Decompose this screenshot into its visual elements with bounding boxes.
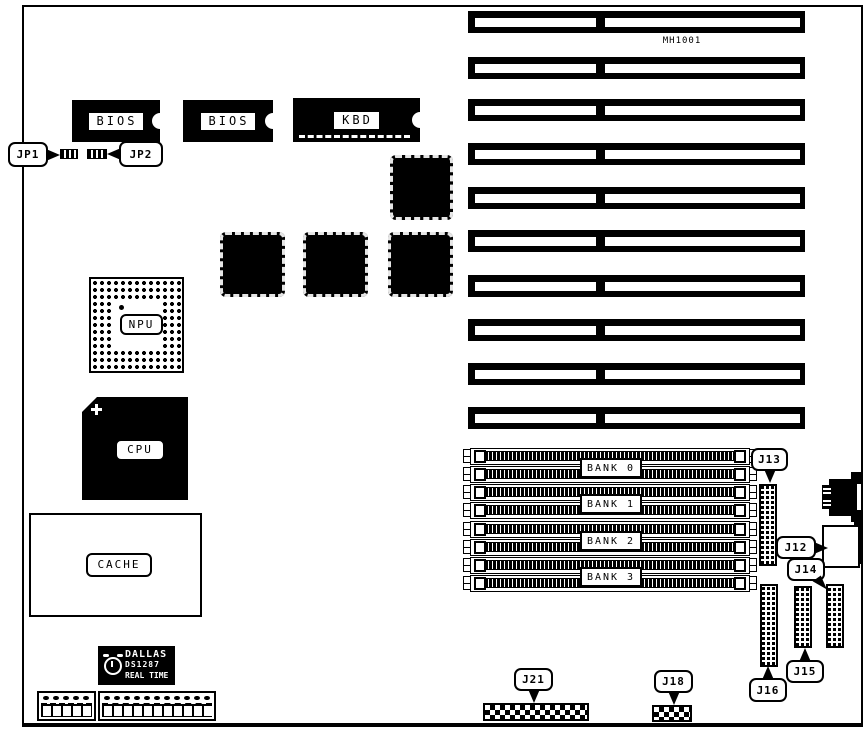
bank3-label-box: BANK 3 — [580, 567, 642, 587]
isa-slot-1 — [468, 11, 805, 33]
cache-label: CACHE — [97, 558, 140, 572]
qfp-chip-3 — [303, 232, 368, 297]
callout-jp1: JP1 — [8, 142, 48, 167]
isa-slot-opening — [475, 194, 596, 203]
rtc-tagline: REAL TIME — [125, 670, 168, 681]
j14-header — [826, 584, 844, 648]
isa-slot-3 — [468, 99, 805, 121]
terminal-block-right — [98, 691, 216, 721]
cpu-label: CPU — [127, 443, 153, 457]
callout-jp2: JP2 — [119, 141, 163, 167]
j21-header — [483, 703, 589, 721]
kbd-socket-pins — [299, 135, 410, 138]
cpu-label-box: CPU — [115, 439, 165, 461]
qfp-chip-1 — [390, 155, 453, 220]
isa-slot-opening — [475, 370, 596, 379]
alarm-clock-icon — [104, 657, 122, 675]
callout-pointer — [762, 666, 774, 680]
callout-j21: J21 — [514, 668, 553, 691]
board-model-number: MH1001 — [650, 36, 714, 46]
simm-latch — [734, 468, 746, 481]
cache-area: CACHE — [29, 513, 202, 617]
callout-jp2-label: JP2 — [130, 148, 153, 161]
bank2-label-box: BANK 2 — [580, 531, 642, 551]
terminal-cells — [41, 704, 92, 717]
isa-slot-opening — [475, 64, 596, 73]
callout-pointer — [764, 469, 776, 483]
bank0-label-box: BANK 0 — [580, 458, 642, 478]
rtc-brand: DALLAS — [125, 649, 168, 660]
isa-slot-opening — [475, 150, 596, 159]
keyboard-controller-chip: KBD — [293, 98, 420, 142]
j15-header — [794, 586, 812, 648]
j18-header — [652, 705, 692, 722]
callout-j14-label: J14 — [795, 563, 818, 576]
callout-j16-label: J16 — [757, 684, 780, 697]
isa-slot-4 — [468, 143, 805, 165]
rtc-model: DS1287 — [125, 660, 168, 670]
callout-j14: J14 — [787, 558, 825, 581]
din-pin-block-2 — [822, 497, 832, 509]
isa-slot-opening — [475, 326, 596, 335]
simm-latch — [734, 541, 746, 554]
callout-j18: J18 — [654, 670, 693, 693]
isa-slot-opening — [475, 414, 596, 423]
simm-latch — [734, 504, 746, 517]
callout-pointer — [668, 691, 680, 705]
simm-latch — [734, 450, 746, 463]
pin1-marker-dot — [119, 305, 124, 310]
callout-j12-label: J12 — [785, 541, 808, 554]
jumper-jp2-block — [87, 149, 107, 159]
isa-slot-opening — [475, 106, 596, 115]
isa-slot-opening — [475, 237, 596, 246]
terminal-cells — [102, 704, 212, 717]
callout-pointer — [528, 689, 540, 703]
simm-latch — [734, 577, 746, 590]
bank1-label: BANK 1 — [587, 499, 635, 510]
isa-slot-opening — [605, 370, 800, 379]
isa-slot-opening — [475, 282, 596, 291]
bios-chip-2-label: BIOS — [201, 113, 256, 130]
callout-pointer — [814, 542, 828, 554]
callout-j15: J15 — [786, 660, 824, 683]
cpu-chip: CPU — [82, 397, 188, 500]
rtc-chip: DALLAS DS1287 REAL TIME — [98, 646, 175, 685]
callout-j15-label: J15 — [794, 665, 817, 678]
isa-slot-5 — [468, 187, 805, 209]
callout-j13: J13 — [751, 448, 788, 471]
isa-slot-opening — [605, 106, 800, 115]
isa-slot-opening — [605, 194, 800, 203]
isa-slot-6 — [468, 230, 805, 252]
din-pin-block-1 — [822, 485, 832, 497]
bank0-label: BANK 0 — [587, 463, 635, 474]
callout-j18-label: J18 — [662, 675, 685, 688]
callout-j13-label: J13 — [758, 453, 781, 466]
npu-socket-center: NPU — [112, 300, 161, 348]
isa-slot-10 — [468, 407, 805, 429]
j13-header — [759, 484, 777, 566]
npu-label: NPU — [129, 318, 155, 332]
isa-slot-2 — [468, 57, 805, 79]
motherboard-diagram: MH1001 BIOS BIOS KBD JP1 JP2 NPU — [0, 0, 867, 731]
bios-chip-1: BIOS — [72, 100, 160, 142]
callout-j21-label: J21 — [522, 673, 545, 686]
bank3-label: BANK 3 — [587, 572, 635, 583]
isa-slot-opening — [605, 414, 800, 423]
isa-slot-opening — [605, 237, 800, 246]
isa-slot-7 — [468, 275, 805, 297]
isa-slot-opening — [605, 282, 800, 291]
callout-pointer — [107, 148, 121, 160]
isa-slot-opening — [605, 150, 800, 159]
callout-j16: J16 — [749, 678, 787, 702]
kbd-chip-label: KBD — [334, 112, 379, 129]
simm-latch — [734, 559, 746, 572]
qfp-chip-2 — [220, 232, 285, 297]
bank2-label: BANK 2 — [587, 536, 635, 547]
isa-slot-9 — [468, 363, 805, 385]
din-mount-tab-top — [851, 472, 862, 484]
j16-header — [760, 584, 778, 667]
rtc-text: DALLAS DS1287 REAL TIME — [125, 649, 168, 681]
terminal-block-left — [37, 691, 96, 721]
npu-socket: NPU — [89, 277, 184, 373]
isa-slot-opening — [605, 326, 800, 335]
callout-pointer — [799, 648, 811, 662]
simm-latch — [734, 523, 746, 536]
isa-slot-8 — [468, 319, 805, 341]
isa-slot-opening — [605, 64, 800, 73]
jumper-jp1-block — [60, 149, 78, 159]
bios-chip-2: BIOS — [183, 100, 273, 142]
isa-slot-opening — [475, 18, 596, 27]
cache-label-box: CACHE — [86, 553, 152, 577]
qfp-chip-4 — [388, 232, 453, 297]
isa-slot-opening — [605, 18, 800, 27]
callout-jp1-label: JP1 — [17, 148, 40, 161]
bios-chip-1-label: BIOS — [89, 113, 144, 130]
bank1-label-box: BANK 1 — [580, 494, 642, 514]
simm-latch — [734, 486, 746, 499]
callout-j12: J12 — [776, 536, 816, 559]
npu-label-box: NPU — [120, 314, 163, 335]
callout-pointer — [46, 149, 60, 161]
pin1-star-marker — [91, 404, 102, 415]
